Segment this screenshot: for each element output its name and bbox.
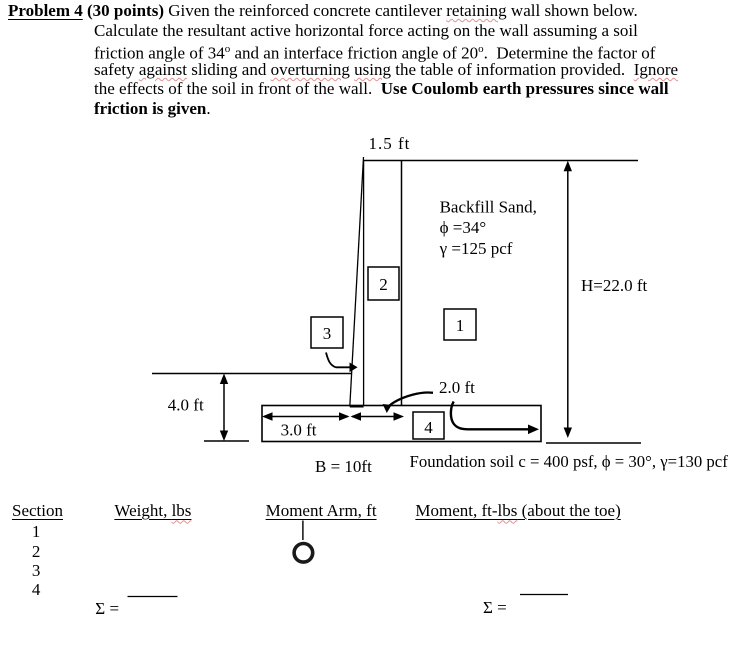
svg-text:1: 1 (456, 316, 465, 335)
svg-text:B = 10ft: B = 10ft (315, 457, 372, 476)
svg-text:H=22.0 ft: H=22.0 ft (581, 276, 648, 295)
svg-text:3: 3 (323, 324, 332, 343)
svg-text:1.5 ft: 1.5 ft (369, 134, 411, 153)
svg-text:ϕ =34°: ϕ =34° (440, 218, 487, 237)
svg-text:Backfill Sand,: Backfill Sand, (440, 198, 537, 217)
svg-text:4: 4 (424, 418, 433, 437)
svg-text:Foundation soil c = 400 psf, ϕ: Foundation soil c = 400 psf, ϕ = 30°, γ=… (410, 452, 729, 471)
svg-text:2.0 ft: 2.0 ft (439, 378, 475, 397)
svg-text:3.0 ft: 3.0 ft (281, 421, 317, 440)
svg-text:γ =125 pcf: γ =125 pcf (439, 239, 513, 258)
svg-text:2: 2 (379, 275, 388, 294)
svg-text:4.0 ft: 4.0 ft (168, 396, 204, 415)
